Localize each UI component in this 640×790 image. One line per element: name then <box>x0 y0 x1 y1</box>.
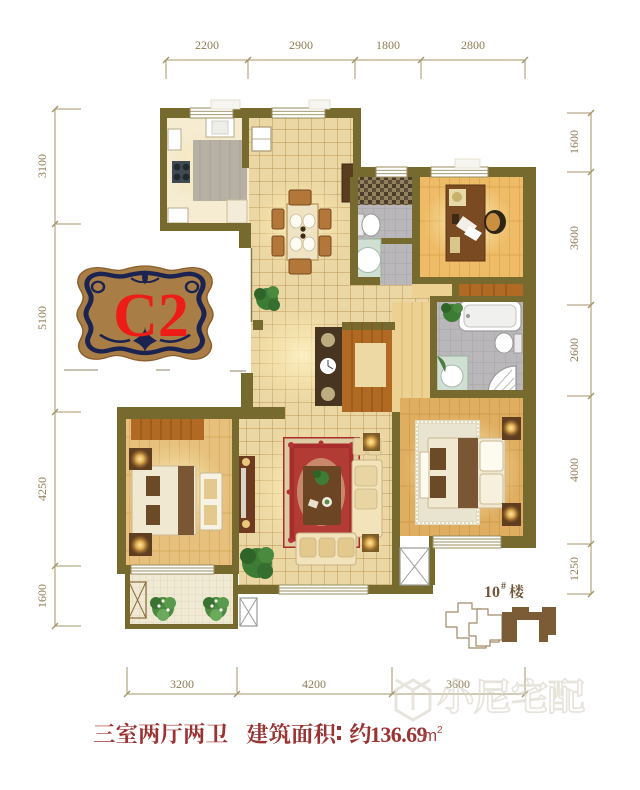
svg-text:10: 10 <box>484 584 500 601</box>
svg-text:5100: 5100 <box>35 306 49 330</box>
svg-text:m: m <box>423 726 437 745</box>
svg-text:2600: 2600 <box>567 338 581 362</box>
svg-text:1600: 1600 <box>567 130 581 154</box>
svg-text:3100: 3100 <box>35 154 49 178</box>
svg-text:1600: 1600 <box>35 584 49 608</box>
svg-text:C2: C2 <box>113 282 189 350</box>
svg-text:4250: 4250 <box>35 477 49 501</box>
svg-text:2200: 2200 <box>195 38 219 52</box>
svg-text:2900: 2900 <box>289 38 313 52</box>
svg-text:3600: 3600 <box>567 226 581 250</box>
svg-text:2: 2 <box>437 725 443 736</box>
svg-text:4200: 4200 <box>302 677 326 691</box>
svg-text:1250: 1250 <box>567 557 581 581</box>
svg-text:136.69: 136.69 <box>370 722 428 747</box>
svg-text:2800: 2800 <box>461 38 485 52</box>
svg-text:4000: 4000 <box>567 458 581 482</box>
svg-text:1800: 1800 <box>376 38 400 52</box>
svg-text:3200: 3200 <box>170 677 194 691</box>
svg-text:#: # <box>501 581 506 592</box>
